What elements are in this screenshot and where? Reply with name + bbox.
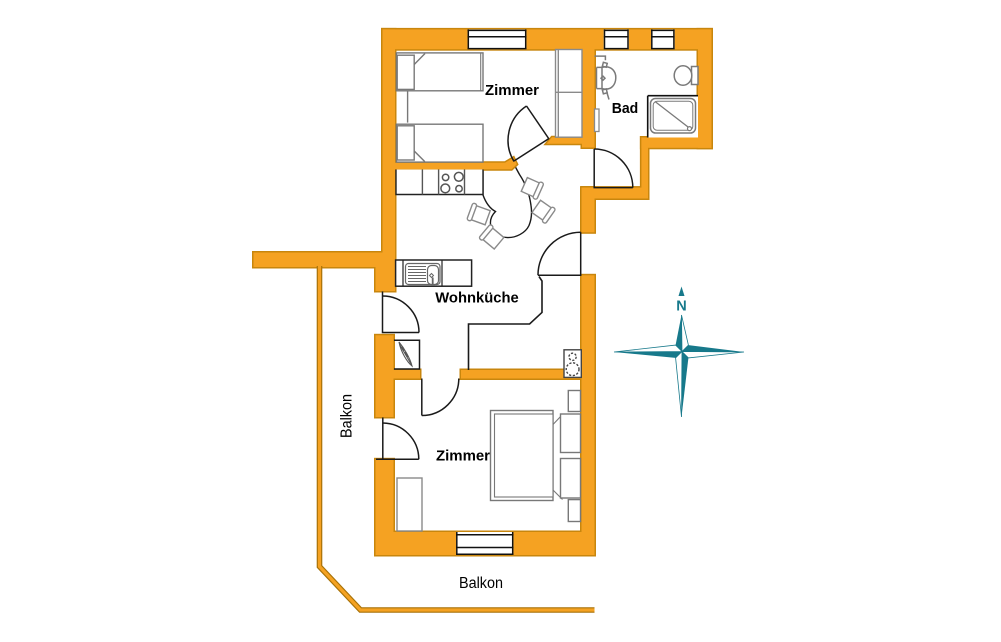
svg-text:Wohnküche: Wohnküche — [435, 290, 519, 306]
svg-text:Balkon: Balkon — [459, 575, 503, 592]
svg-text:Zimmer: Zimmer — [485, 83, 539, 99]
svg-text:Balkon: Balkon — [339, 394, 356, 438]
svg-text:Zimmer: Zimmer — [436, 448, 490, 464]
svg-text:N: N — [676, 299, 686, 315]
svg-text:Bad: Bad — [612, 101, 639, 117]
